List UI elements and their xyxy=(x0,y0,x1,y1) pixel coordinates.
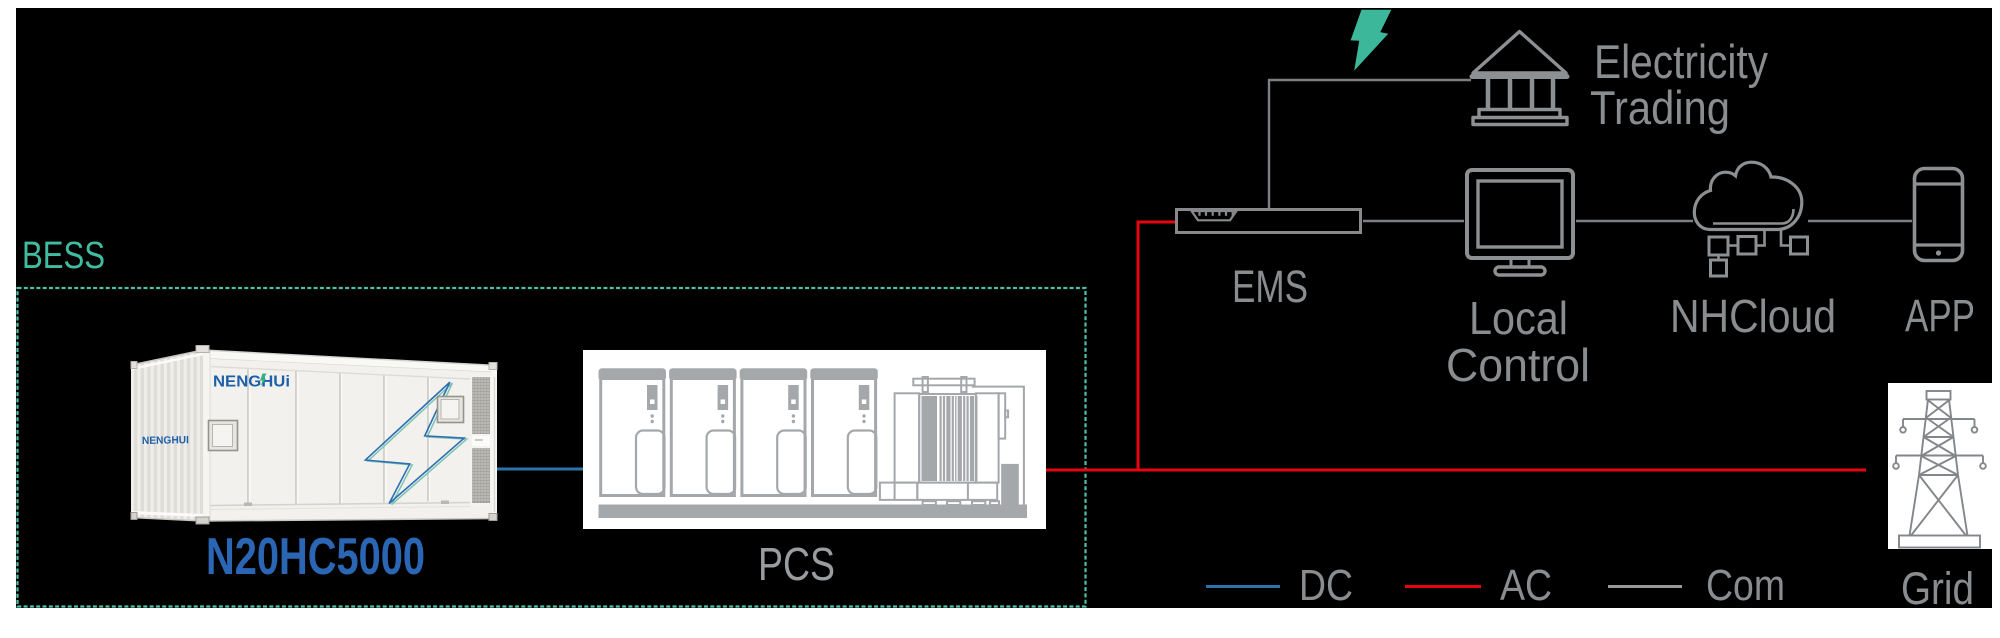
svg-text:Local: Local xyxy=(1469,292,1568,344)
svg-text:NENGHUi: NENGHUi xyxy=(213,374,290,391)
svg-text:NENGHUI: NENGHUI xyxy=(142,434,189,447)
svg-text:EMS: EMS xyxy=(1232,261,1308,312)
svg-text:AC: AC xyxy=(1500,561,1552,610)
svg-text:DC: DC xyxy=(1299,561,1353,610)
svg-text:NHCloud: NHCloud xyxy=(1670,290,1836,342)
svg-text:BESS: BESS xyxy=(22,235,105,277)
svg-text:Control: Control xyxy=(1446,339,1590,391)
svg-text:Com: Com xyxy=(1706,561,1785,610)
svg-text:N20HC5000: N20HC5000 xyxy=(206,528,425,586)
svg-text:Trading: Trading xyxy=(1590,81,1730,134)
svg-text:Grid: Grid xyxy=(1901,563,1974,614)
svg-text:APP: APP xyxy=(1905,290,1975,341)
svg-text:PCS: PCS xyxy=(758,538,835,590)
